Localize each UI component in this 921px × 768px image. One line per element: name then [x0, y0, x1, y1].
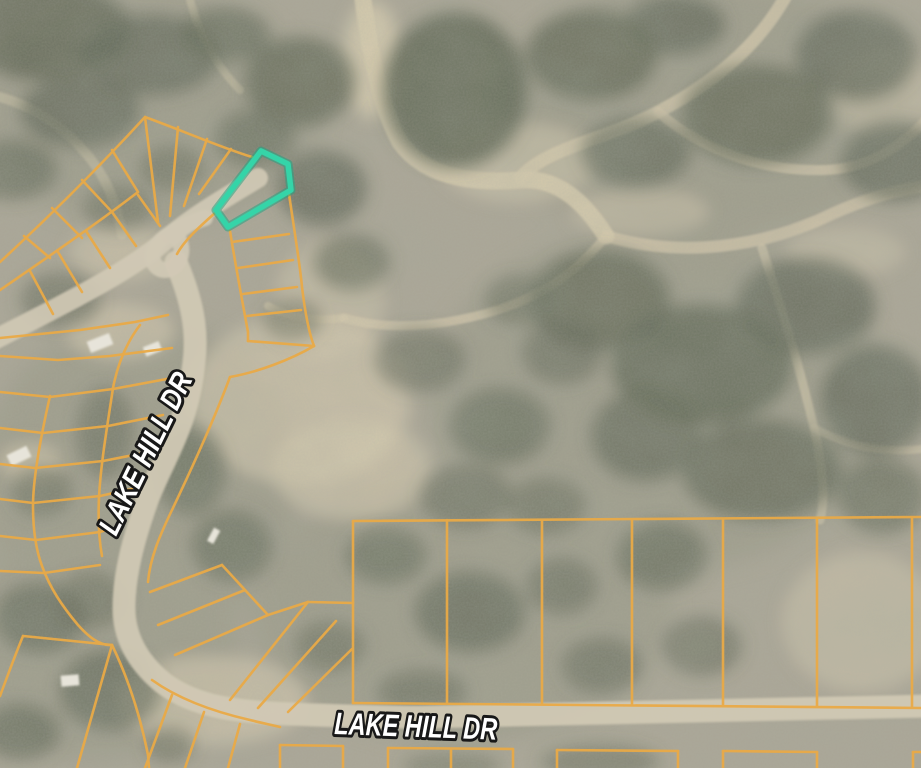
atmosphere-wash — [0, 0, 921, 768]
satellite-map[interactable]: LAKE HILL DR LAKE HILL DR — [0, 0, 921, 768]
satellite-map-canvas[interactable]: LAKE HILL DR LAKE HILL DR — [0, 0, 921, 768]
